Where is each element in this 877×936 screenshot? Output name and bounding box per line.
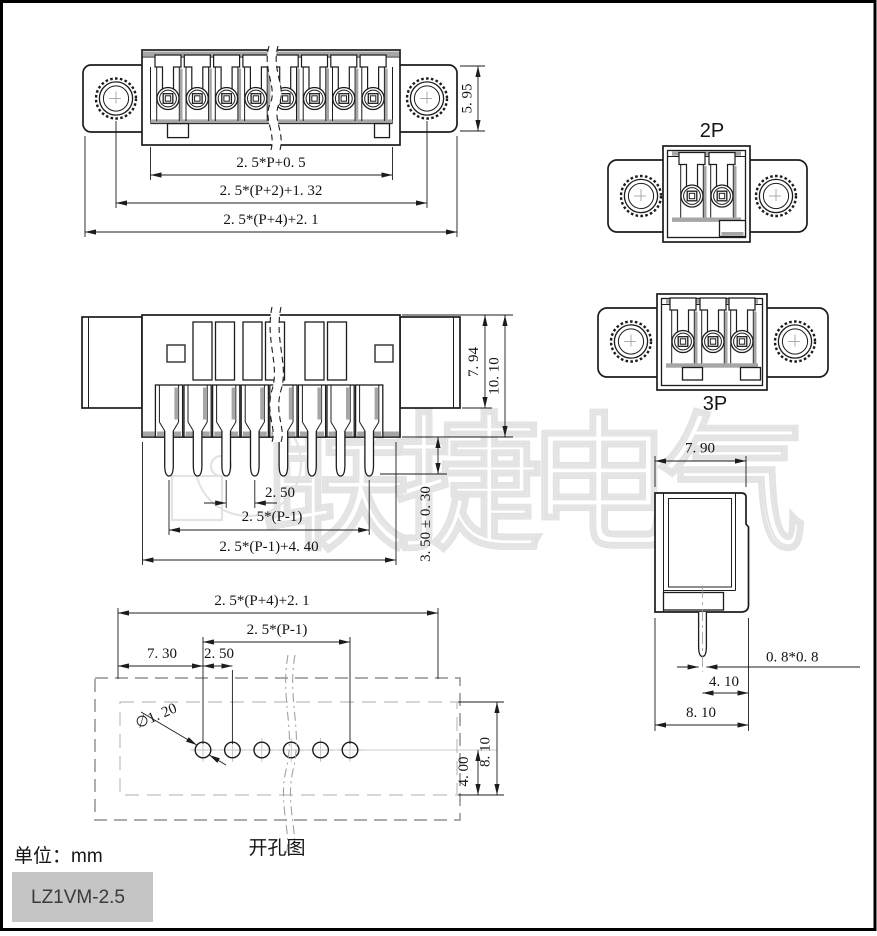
dim-drill-height: 8. 10 [478,737,494,767]
footer: 单位：mm LZ1VM-2.5 [12,845,153,922]
dim-bottom-base-width: 2. 5*(P-1)+4. 40 [219,539,318,555]
front-view: 5. 95 2. 5*P+0. 5 2. 5*(P+2)+1. 32 2. 5*… [83,46,485,237]
variant-3p-view: 3P [598,294,828,415]
dim-side-pin-to-edge: 4. 10 [709,674,739,690]
dim-drill-hole-dia: ∅1. 20 [133,701,179,733]
dim-bottom-body-height: 7. 94 [466,347,482,378]
variant-2p-view: 2P [608,120,807,242]
drill-layout-view: 2. 5*(P+4)+2. 1 2. 5*(P-1) 7. 30 2. 50 ∅… [95,593,504,859]
dim-drill-overall: 2. 5*(P+4)+2. 1 [214,593,309,609]
dim-side-overall-width: 8. 10 [686,705,716,721]
dim-front-height: 5. 95 [460,84,476,114]
variant-3p-label: 3P [703,393,727,415]
dim-front-overall: 2. 5*(P+4)+2. 1 [223,212,318,228]
dim-side-top-width: 7. 90 [685,441,715,457]
drill-view-caption: 开孔图 [248,837,305,859]
dim-bottom-overall-height: 10. 10 [487,357,503,395]
dim-front-pin-span: 2. 5*P+0. 5 [236,155,305,171]
drawing-canvas: 联捷电气 5. 95 2. 5*P+0. 5 [0,0,877,936]
dim-bottom-pitch: 2. 50 [265,485,295,501]
dim-drill-row-offset: 4. 00 [456,757,472,787]
variant-2p-label: 2P [700,120,724,142]
technical-drawing-page: 联捷电气 5. 95 2. 5*P+0. 5 [0,0,877,936]
dim-bottom-pin-span: 2. 5*(P-1) [242,509,303,525]
model-number: LZ1VM-2.5 [31,887,125,908]
dim-side-pin-section: 0. 8*0. 8 [766,650,819,666]
unit-label: 单位：mm [14,845,103,867]
dim-bottom-pin-length: 3. 50 ± 0. 30 [418,486,434,562]
dim-drill-pitch: 2. 50 [204,646,234,662]
dim-front-mount-span: 2. 5*(P+2)+1. 32 [220,183,323,199]
dim-drill-edge-offset: 7. 30 [147,646,177,662]
dim-drill-hole-span: 2. 5*(P-1) [247,622,308,638]
